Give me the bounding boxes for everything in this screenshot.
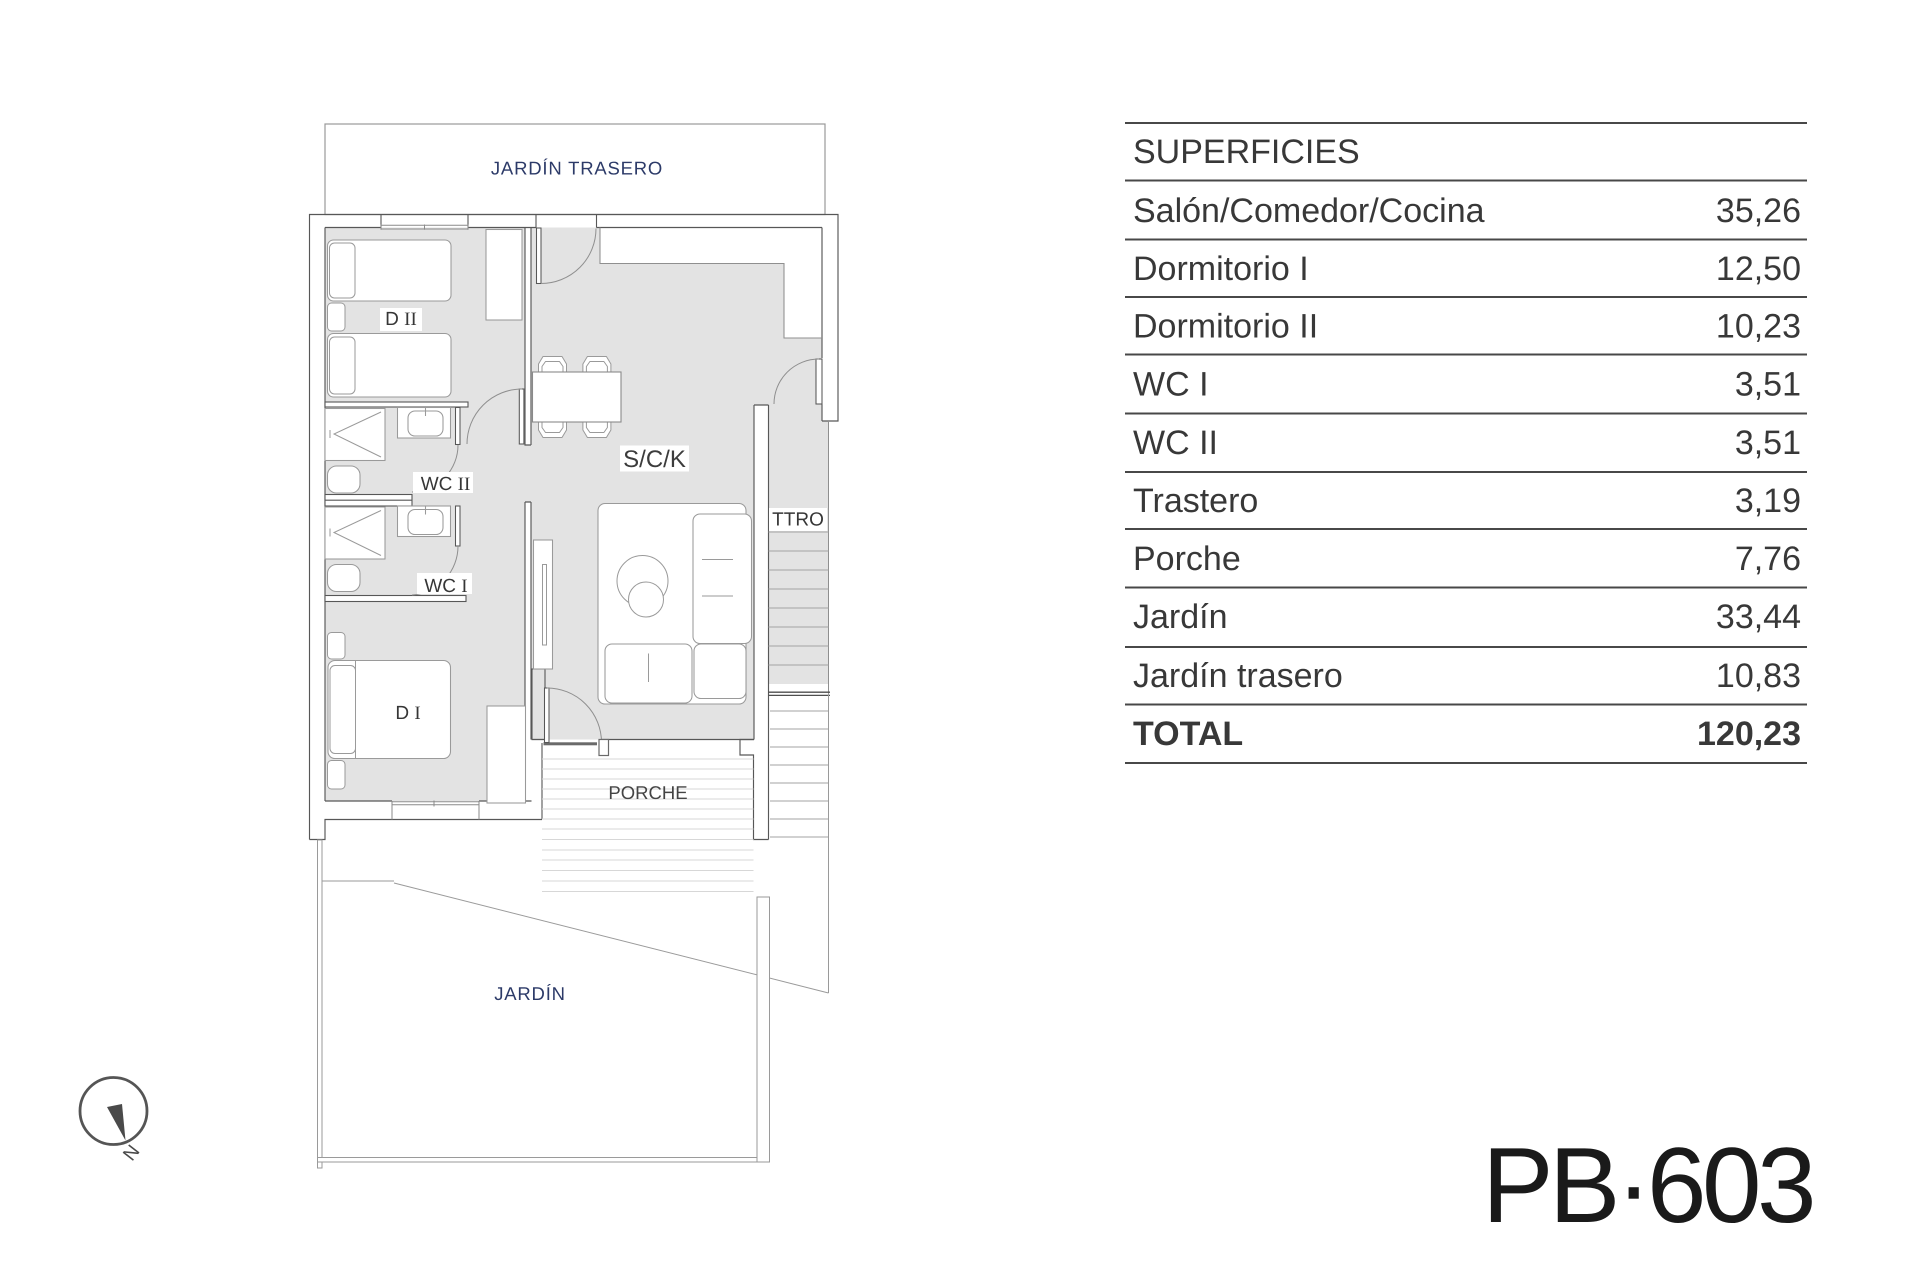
svg-text:JARDÍN: JARDÍN xyxy=(494,983,566,1004)
svg-text:TTRO: TTRO xyxy=(772,510,824,531)
svg-text:Trastero: Trastero xyxy=(1133,482,1258,520)
svg-text:33,44: 33,44 xyxy=(1716,598,1801,636)
svg-text:Dormitorio I: Dormitorio I xyxy=(1133,250,1309,288)
svg-text:SUPERFICIES: SUPERFICIES xyxy=(1133,133,1360,171)
svg-text:Porche: Porche xyxy=(1133,540,1241,578)
svg-text:JARDÍN TRASERO: JARDÍN TRASERO xyxy=(491,158,663,179)
svg-text:120,23: 120,23 xyxy=(1697,715,1801,753)
svg-text:WC II: WC II xyxy=(1133,424,1218,462)
svg-text:WC I: WC I xyxy=(424,576,467,597)
svg-text:TOTAL: TOTAL xyxy=(1133,715,1243,753)
svg-text:D I: D I xyxy=(395,703,420,724)
svg-text:Jardín trasero: Jardín trasero xyxy=(1133,657,1343,695)
svg-text:3,51: 3,51 xyxy=(1735,366,1801,404)
svg-text:Salón/Comedor/Cocina: Salón/Comedor/Cocina xyxy=(1133,192,1485,230)
svg-text:3,51: 3,51 xyxy=(1735,424,1801,462)
svg-text:WC I: WC I xyxy=(1133,366,1209,404)
svg-text:10,83: 10,83 xyxy=(1716,657,1801,695)
svg-text:10,23: 10,23 xyxy=(1716,308,1801,346)
svg-text:Dormitorio II: Dormitorio II xyxy=(1133,308,1318,346)
svg-text:WC II: WC II xyxy=(421,474,471,495)
svg-text:S/C/K: S/C/K xyxy=(623,446,686,473)
svg-text:PORCHE: PORCHE xyxy=(608,782,687,803)
svg-text:35,26: 35,26 xyxy=(1716,192,1801,230)
svg-text:3,19: 3,19 xyxy=(1735,482,1801,520)
svg-text:PB·603: PB·603 xyxy=(1482,1125,1812,1245)
svg-text:Jardín: Jardín xyxy=(1133,598,1228,636)
svg-text:7,76: 7,76 xyxy=(1735,540,1801,578)
svg-text:12,50: 12,50 xyxy=(1716,250,1801,288)
svg-text:D II: D II xyxy=(385,309,417,330)
